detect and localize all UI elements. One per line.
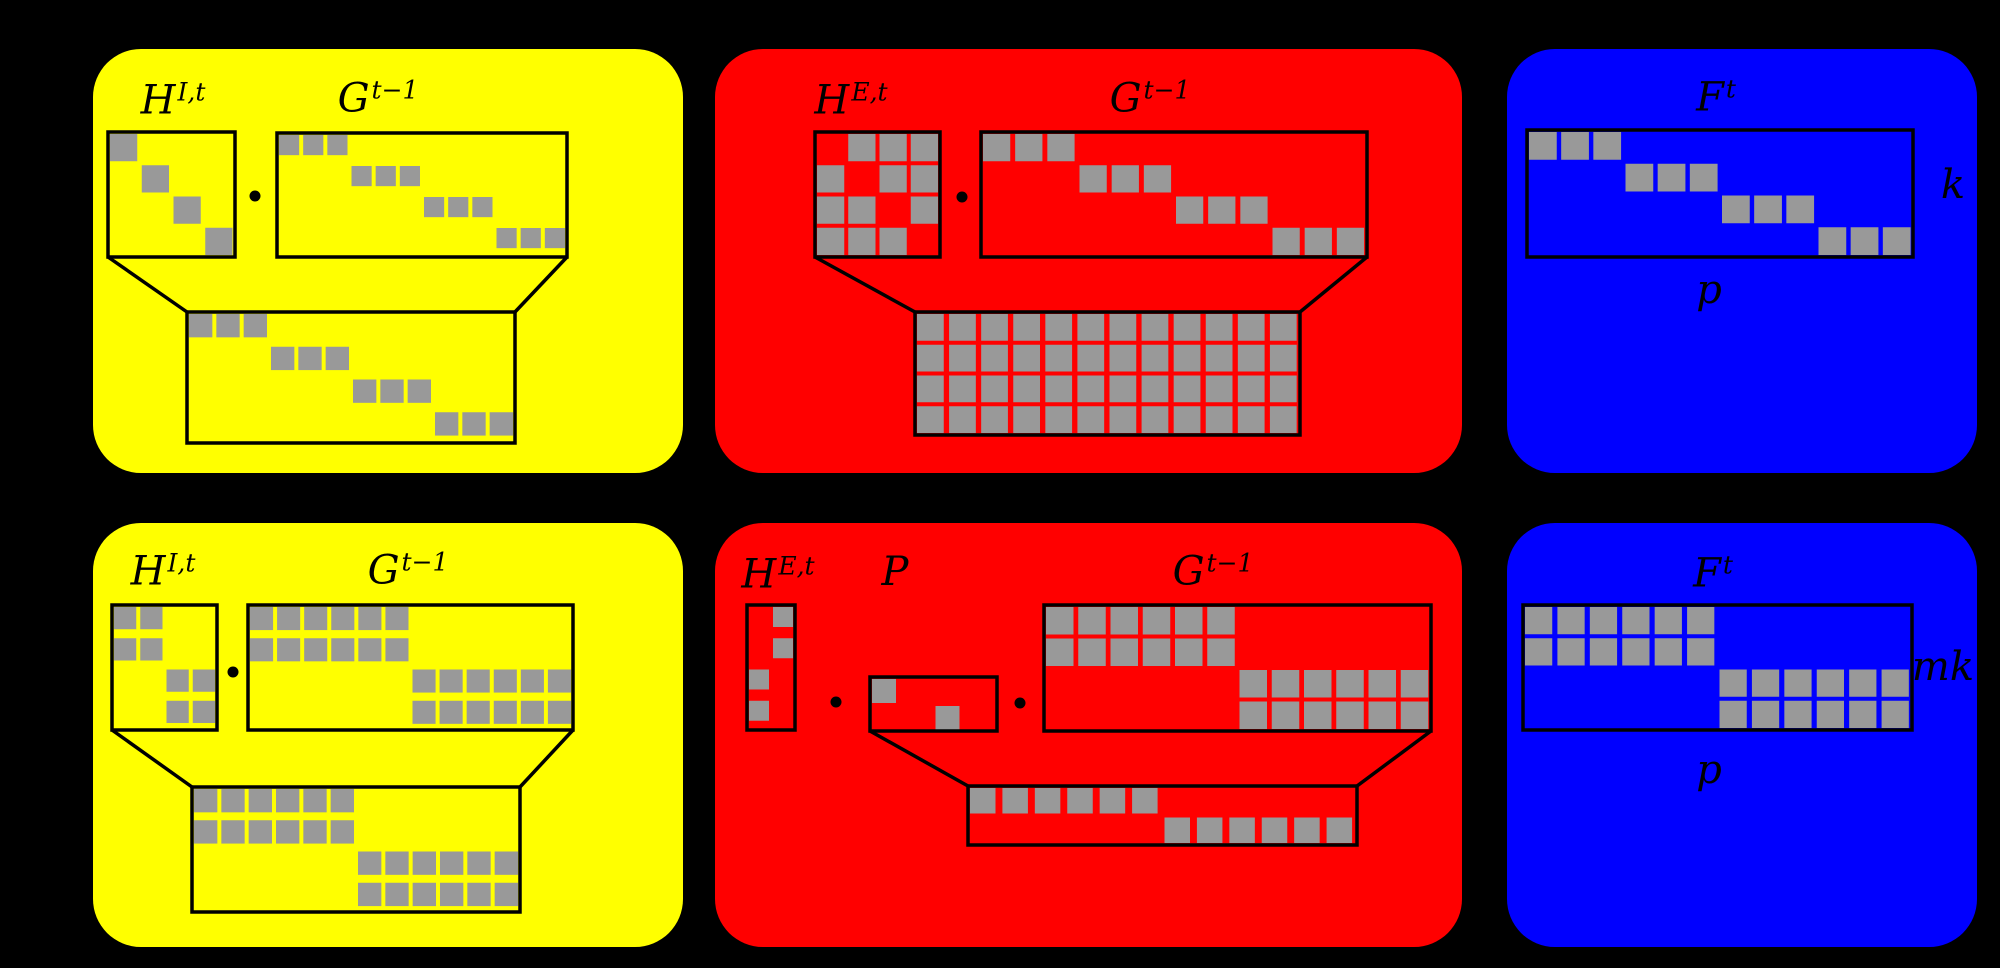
bottom-internal-yellow-result-matrix-cell bbox=[385, 883, 408, 906]
bottom-external-red-result-matrix-cell bbox=[1262, 818, 1288, 844]
bottom-internal-yellow-H-matrix-cell bbox=[167, 670, 189, 692]
bottom-internal-yellow-G-matrix-cell bbox=[467, 670, 490, 693]
bottom-forecast-blue-F-matrix-cell bbox=[1817, 701, 1844, 728]
top-external-red-result-matrix-cell bbox=[1174, 314, 1201, 341]
top-external-red-result-matrix-cell bbox=[1206, 345, 1233, 372]
top-external-red-result-matrix-cell bbox=[1077, 345, 1104, 372]
top-external-red-result-matrix-cell bbox=[1045, 406, 1072, 433]
panel-bottom-forecast-blue bbox=[1507, 523, 1977, 947]
top-internal-yellow-result-matrix-cell bbox=[380, 380, 403, 403]
top-forecast-blue-F-matrix-cell bbox=[1819, 227, 1847, 255]
label-superscript: t bbox=[1723, 551, 1733, 580]
figure-overlay bbox=[0, 0, 2000, 968]
bottom-forecast-blue-F-matrix-cell bbox=[1784, 670, 1811, 697]
bottom-internal-yellow-G-matrix-cell bbox=[548, 670, 571, 693]
top-external-red-result-matrix-cell bbox=[1045, 376, 1072, 403]
top-external-red-result-matrix-cell bbox=[1270, 314, 1297, 341]
bottom-forecast-blue-F-matrix-cell bbox=[1817, 670, 1844, 697]
bottom-external-red-G-matrix-cell bbox=[1207, 639, 1235, 667]
top-external-red-result-matrix-cell bbox=[1206, 406, 1233, 433]
top-internal-yellow-result-matrix-cell bbox=[189, 314, 212, 337]
top-external-red-result-matrix-cell bbox=[1142, 314, 1169, 341]
bottom-external-red-G-matrix-cell bbox=[1046, 607, 1074, 635]
top-forecast-blue-F-matrix-cell bbox=[1883, 227, 1911, 255]
bottom-internal-yellow-result-matrix-cell bbox=[194, 789, 217, 812]
bottom-external-red-result-matrix-cell bbox=[1002, 788, 1028, 814]
top-external-red-result-matrix-cell bbox=[1077, 376, 1104, 403]
top-internal-yellow-H-label: HI,t bbox=[141, 80, 206, 121]
bottom-external-red-H-matrix-cell bbox=[773, 638, 793, 658]
top-external-red-result-matrix-cell bbox=[1110, 376, 1137, 403]
top-internal-yellow-result-matrix-cell bbox=[298, 347, 321, 370]
bottom-forecast-blue-F-matrix-cell bbox=[1590, 607, 1617, 634]
top-external-red-result-matrix-cell bbox=[949, 314, 976, 341]
top-external-red-result-matrix-cell bbox=[1270, 376, 1297, 403]
top-forecast-blue-F-matrix-cell bbox=[1658, 164, 1686, 192]
top-external-red-result-matrix-cell bbox=[917, 345, 944, 372]
bottom-external-red-G-matrix-cell bbox=[1272, 702, 1300, 730]
top-forecast-blue-F-matrix-cell bbox=[1754, 196, 1782, 224]
bottom-forecast-blue-F-matrix-cell bbox=[1622, 638, 1649, 665]
top-internal-yellow-G-matrix-cell bbox=[545, 228, 565, 248]
top-external-red-result-matrix-cell bbox=[1077, 406, 1104, 433]
top-forecast-blue-F-matrix-cell bbox=[1626, 164, 1654, 192]
bottom-internal-yellow-result-matrix-cell bbox=[358, 883, 381, 906]
top-external-red-result-matrix-cell bbox=[1238, 314, 1265, 341]
bottom-forecast-blue-F-matrix-cell bbox=[1882, 701, 1909, 728]
panel-bottom-external-red bbox=[715, 523, 1462, 947]
top-external-red-H-matrix-cell bbox=[911, 134, 938, 161]
top-forecast-blue-F-matrix-cell bbox=[1561, 132, 1589, 160]
bottom-internal-yellow-H-matrix-cell bbox=[140, 638, 162, 660]
top-forecast-blue-F-matrix-cell bbox=[1786, 196, 1814, 224]
bottom-internal-yellow-G-matrix-cell bbox=[467, 701, 490, 724]
bottom-internal-yellow-G-matrix-cell bbox=[358, 638, 381, 661]
top-internal-yellow-G-matrix-cell bbox=[424, 197, 444, 217]
top-external-red-result-matrix-cell bbox=[917, 314, 944, 341]
bottom-forecast-blue-F-matrix-cell bbox=[1687, 638, 1714, 665]
top-external-red-H-label: HE,t bbox=[814, 80, 887, 121]
top-external-red-G-matrix-cell bbox=[1208, 197, 1235, 224]
label-superscript: E,t bbox=[851, 78, 887, 107]
panel-top-forecast-blue bbox=[1507, 49, 1977, 473]
top-external-red-result-matrix-cell bbox=[1238, 406, 1265, 433]
top-internal-yellow-G-label: Gt−1 bbox=[338, 78, 419, 119]
label-superscript: t−1 bbox=[372, 76, 419, 105]
top-external-red-multiply-dot bbox=[957, 192, 968, 203]
bottom-external-red-G-matrix-cell bbox=[1336, 702, 1364, 730]
label-base: F bbox=[1693, 551, 1721, 597]
top-external-red-G-matrix-cell bbox=[983, 134, 1010, 161]
bottom-internal-yellow-result-matrix-cell bbox=[413, 883, 436, 906]
bottom-external-red-result-matrix-cell bbox=[1132, 788, 1158, 814]
top-forecast-blue-F-label: Ft bbox=[1696, 77, 1736, 118]
bottom-internal-yellow-H-matrix-cell bbox=[193, 670, 215, 692]
bottom-forecast-blue-F-matrix-cell bbox=[1525, 607, 1552, 634]
bottom-external-red-G-matrix-cell bbox=[1143, 639, 1171, 667]
top-external-red-G-matrix-cell bbox=[1112, 165, 1139, 192]
bottom-external-red-G-matrix-cell bbox=[1304, 702, 1332, 730]
top-external-red-result-matrix-cell bbox=[981, 406, 1008, 433]
bottom-internal-yellow-G-matrix-cell bbox=[385, 638, 408, 661]
bottom-internal-yellow-G-matrix-cell bbox=[548, 701, 571, 724]
bottom-external-red-result-matrix-cell bbox=[1197, 818, 1223, 844]
top-external-red-result-matrix-cell bbox=[1045, 345, 1072, 372]
top-internal-yellow-result-matrix-cell bbox=[271, 347, 294, 370]
bottom-internal-yellow-G-matrix-cell bbox=[413, 670, 436, 693]
bottom-external-red-result-matrix-cell bbox=[1229, 818, 1255, 844]
bottom-forecast-blue-F-matrix-cell bbox=[1622, 607, 1649, 634]
top-internal-yellow-G-matrix-cell bbox=[279, 135, 299, 155]
label-superscript: t−1 bbox=[402, 548, 449, 577]
bottom-internal-yellow-result-matrix-cell bbox=[467, 883, 490, 906]
bottom-internal-yellow-G-matrix-cell bbox=[494, 701, 517, 724]
top-external-red-H-matrix-cell bbox=[880, 134, 907, 161]
bottom-internal-yellow-result-matrix-cell bbox=[276, 820, 299, 843]
bottom-internal-yellow-G-matrix-cell bbox=[250, 638, 273, 661]
top-internal-yellow-G-matrix-cell bbox=[521, 228, 541, 248]
top-internal-yellow-G-matrix-cell bbox=[400, 166, 420, 186]
top-external-red-result-matrix-cell bbox=[981, 314, 1008, 341]
matrix-factorization-figure: HI,tGt−1HE,tGt−1FtkpHI,tGt−1HE,tPGt−1Ftm… bbox=[0, 0, 2000, 968]
top-external-red-result-matrix-cell bbox=[949, 376, 976, 403]
top-external-red-result-matrix-cell bbox=[1013, 376, 1040, 403]
bottom-internal-yellow-result-matrix-cell bbox=[249, 820, 272, 843]
bottom-external-red-P-label: P bbox=[882, 552, 909, 592]
bottom-internal-yellow-G-matrix-cell bbox=[440, 670, 463, 693]
top-external-red-result-matrix-cell bbox=[917, 406, 944, 433]
top-external-red-H-matrix-cell bbox=[880, 228, 907, 255]
label-base: G bbox=[338, 76, 370, 122]
bottom-external-red-H-matrix-cell bbox=[749, 670, 769, 690]
bottom-forecast-blue-p-label: p bbox=[1696, 750, 1722, 790]
bottom-forecast-blue-F-matrix-cell bbox=[1655, 638, 1682, 665]
bottom-forecast-blue-F-matrix-cell bbox=[1752, 670, 1779, 697]
label-base: k bbox=[1941, 162, 1965, 208]
top-external-red-H-matrix-cell bbox=[817, 165, 844, 192]
bottom-internal-yellow-H-matrix-cell bbox=[193, 701, 215, 723]
bottom-internal-yellow-G-matrix-cell bbox=[385, 607, 408, 630]
top-internal-yellow-result-matrix-cell bbox=[244, 314, 267, 337]
bottom-internal-yellow-G-matrix-cell bbox=[413, 701, 436, 724]
bottom-internal-yellow-G-matrix-cell bbox=[250, 607, 273, 630]
label-superscript: E,t bbox=[778, 552, 814, 581]
top-forecast-blue-k-label: k bbox=[1941, 165, 1965, 205]
bottom-internal-yellow-H-matrix-cell bbox=[167, 701, 189, 723]
top-external-red-G-matrix-cell bbox=[1337, 228, 1364, 255]
top-forecast-blue-F-matrix-cell bbox=[1529, 132, 1557, 160]
top-external-red-result-matrix-cell bbox=[1174, 376, 1201, 403]
top-external-red-result-matrix-cell bbox=[1142, 376, 1169, 403]
top-external-red-G-matrix-cell bbox=[1015, 134, 1042, 161]
top-internal-yellow-result-matrix-cell bbox=[435, 412, 458, 435]
top-external-red-G-matrix-cell bbox=[1080, 165, 1107, 192]
bottom-external-red-H-label: HE,t bbox=[741, 554, 814, 595]
top-forecast-blue-F-matrix-cell bbox=[1851, 227, 1879, 255]
bottom-external-red-G-matrix-cell bbox=[1272, 670, 1300, 698]
bottom-internal-yellow-result-matrix-cell bbox=[413, 852, 436, 875]
top-internal-yellow-G-matrix-cell bbox=[327, 135, 347, 155]
bottom-internal-yellow-G-matrix-cell bbox=[277, 607, 300, 630]
bottom-external-red-multiply-dot bbox=[831, 697, 842, 708]
bottom-internal-yellow-multiply-dot bbox=[228, 667, 239, 678]
bottom-forecast-blue-F-matrix-cell bbox=[1687, 607, 1714, 634]
bottom-internal-yellow-result-matrix-cell bbox=[495, 852, 518, 875]
bottom-internal-yellow-result-matrix-cell bbox=[385, 852, 408, 875]
top-internal-yellow-result-matrix-cell bbox=[326, 347, 349, 370]
label-base: F bbox=[1696, 75, 1724, 121]
bottom-external-red-result-matrix-cell bbox=[970, 788, 996, 814]
top-internal-yellow-result-matrix-cell bbox=[353, 380, 376, 403]
bottom-external-red-G-matrix-cell bbox=[1240, 702, 1268, 730]
label-base: p bbox=[1696, 267, 1722, 313]
bottom-forecast-blue-F-matrix-cell bbox=[1720, 670, 1747, 697]
top-forecast-blue-F-matrix-cell bbox=[1593, 132, 1621, 160]
top-internal-yellow-G-matrix-cell bbox=[303, 135, 323, 155]
bottom-external-red-G-matrix-cell bbox=[1336, 670, 1364, 698]
bottom-external-red-G-matrix-cell bbox=[1175, 607, 1203, 635]
bottom-external-red-result-matrix-cell bbox=[1067, 788, 1093, 814]
bottom-external-red-G-matrix-cell bbox=[1401, 702, 1429, 730]
top-external-red-H-matrix-cell bbox=[911, 165, 938, 192]
bottom-external-red-G-matrix-cell bbox=[1078, 639, 1106, 667]
top-external-red-result-matrix-cell bbox=[949, 406, 976, 433]
top-external-red-result-matrix-cell bbox=[1238, 345, 1265, 372]
top-external-red-result-matrix-cell bbox=[1013, 314, 1040, 341]
bottom-forecast-blue-F-matrix-cell bbox=[1557, 607, 1584, 634]
top-external-red-H-matrix-cell bbox=[848, 228, 875, 255]
bottom-internal-yellow-result-matrix-cell bbox=[249, 789, 272, 812]
bottom-external-red-G-matrix-cell bbox=[1078, 607, 1106, 635]
bottom-internal-yellow-H-matrix-cell bbox=[114, 607, 136, 629]
top-external-red-G-matrix-cell bbox=[1273, 228, 1300, 255]
top-forecast-blue-F-matrix-cell bbox=[1690, 164, 1718, 192]
bottom-external-red-G-matrix-cell bbox=[1046, 639, 1074, 667]
bottom-internal-yellow-G-matrix-cell bbox=[358, 607, 381, 630]
bottom-forecast-blue-F-matrix-cell bbox=[1720, 701, 1747, 728]
bottom-forecast-blue-F-matrix-cell bbox=[1849, 701, 1876, 728]
top-external-red-H-matrix-cell bbox=[817, 228, 844, 255]
top-external-red-result-matrix-cell bbox=[1045, 314, 1072, 341]
bottom-internal-yellow-H-matrix-cell bbox=[114, 638, 136, 660]
top-external-red-result-matrix-cell bbox=[1013, 406, 1040, 433]
bottom-internal-yellow-result-matrix-cell bbox=[467, 852, 490, 875]
top-external-red-result-matrix-cell bbox=[1206, 314, 1233, 341]
bottom-external-red-G-matrix-cell bbox=[1304, 670, 1332, 698]
bottom-external-red-G-matrix-cell bbox=[1401, 670, 1429, 698]
top-internal-yellow-G-matrix-cell bbox=[376, 166, 396, 186]
top-external-red-result-matrix-cell bbox=[1206, 376, 1233, 403]
bottom-external-red-result-matrix-cell bbox=[1165, 818, 1191, 844]
top-internal-yellow-H-matrix-cell bbox=[142, 165, 169, 192]
top-external-red-G-matrix-cell bbox=[1176, 197, 1203, 224]
top-external-red-H-matrix-cell bbox=[817, 197, 844, 224]
bottom-external-red-G-matrix-cell bbox=[1143, 607, 1171, 635]
bottom-internal-yellow-result-matrix-cell bbox=[221, 789, 244, 812]
bottom-forecast-blue-F-matrix-cell bbox=[1784, 701, 1811, 728]
top-internal-yellow-multiply-dot bbox=[250, 191, 261, 202]
bottom-external-red-result-matrix-cell bbox=[1100, 788, 1126, 814]
bottom-internal-yellow-G-label: Gt−1 bbox=[368, 550, 449, 591]
top-external-red-result-matrix-cell bbox=[1013, 345, 1040, 372]
top-external-red-G-matrix-cell bbox=[1305, 228, 1332, 255]
top-external-red-result-matrix-cell bbox=[981, 376, 1008, 403]
bottom-internal-yellow-H-label: HI,t bbox=[131, 551, 196, 592]
top-external-red-G-matrix-cell bbox=[1047, 134, 1074, 161]
label-superscript: I,t bbox=[168, 549, 196, 578]
bottom-external-red-result-matrix-cell bbox=[1327, 818, 1353, 844]
top-external-red-result-matrix-cell bbox=[981, 345, 1008, 372]
bottom-internal-yellow-result-matrix-cell bbox=[303, 789, 326, 812]
top-forecast-blue-F-matrix-cell bbox=[1722, 196, 1750, 224]
top-external-red-G-matrix-cell bbox=[1144, 165, 1171, 192]
top-internal-yellow-G-matrix-cell bbox=[352, 166, 372, 186]
bottom-internal-yellow-result-matrix-cell bbox=[440, 883, 463, 906]
bottom-internal-yellow-G-matrix-cell bbox=[304, 607, 327, 630]
label-base: H bbox=[131, 549, 166, 595]
bottom-external-red-G-matrix-cell bbox=[1240, 670, 1268, 698]
bottom-internal-yellow-result-matrix-cell bbox=[331, 820, 354, 843]
bottom-external-red-multiply-dot bbox=[1015, 698, 1026, 709]
top-internal-yellow-G-matrix-cell bbox=[497, 228, 517, 248]
label-superscript: t bbox=[1726, 75, 1736, 104]
top-external-red-result-matrix-cell bbox=[1174, 345, 1201, 372]
bottom-internal-yellow-result-matrix-cell bbox=[358, 852, 381, 875]
label-base: P bbox=[882, 549, 909, 595]
bottom-internal-yellow-result-matrix-cell bbox=[440, 852, 463, 875]
top-internal-yellow-result-matrix-cell bbox=[408, 380, 431, 403]
bottom-external-red-G-matrix-cell bbox=[1369, 702, 1397, 730]
bottom-external-red-result-matrix-cell bbox=[1035, 788, 1061, 814]
bottom-external-red-P-matrix-cell bbox=[936, 706, 960, 730]
bottom-internal-yellow-G-matrix-cell bbox=[440, 701, 463, 724]
bottom-external-red-G-matrix-cell bbox=[1111, 607, 1139, 635]
bottom-forecast-blue-F-label: Ft bbox=[1693, 553, 1733, 594]
top-external-red-G-label: Gt−1 bbox=[1110, 78, 1191, 119]
bottom-forecast-blue-F-matrix-cell bbox=[1590, 638, 1617, 665]
bottom-internal-yellow-G-matrix-cell bbox=[521, 701, 544, 724]
top-internal-yellow-G-matrix-cell bbox=[472, 197, 492, 217]
bottom-external-red-G-label: Gt−1 bbox=[1173, 551, 1254, 592]
top-external-red-G-matrix-cell bbox=[1240, 197, 1267, 224]
bottom-forecast-blue-mk-label: mk bbox=[1912, 647, 1974, 687]
bottom-internal-yellow-result-matrix-cell bbox=[495, 883, 518, 906]
top-forecast-blue-p-label: p bbox=[1696, 270, 1722, 310]
top-external-red-result-matrix-cell bbox=[1270, 345, 1297, 372]
bottom-internal-yellow-G-matrix-cell bbox=[304, 638, 327, 661]
label-superscript: I,t bbox=[178, 78, 206, 107]
label-base: H bbox=[741, 552, 776, 598]
bottom-internal-yellow-result-matrix-cell bbox=[194, 820, 217, 843]
top-external-red-result-matrix-cell bbox=[1110, 345, 1137, 372]
bottom-internal-yellow-G-matrix-cell bbox=[331, 607, 354, 630]
top-external-red-result-matrix-cell bbox=[917, 376, 944, 403]
bottom-external-red-G-matrix-cell bbox=[1369, 670, 1397, 698]
top-internal-yellow-result-matrix-cell bbox=[490, 412, 513, 435]
bottom-internal-yellow-G-matrix-cell bbox=[277, 638, 300, 661]
top-external-red-result-matrix-cell bbox=[1238, 376, 1265, 403]
bottom-internal-yellow-result-matrix-cell bbox=[331, 789, 354, 812]
bottom-external-red-G-matrix-cell bbox=[1111, 639, 1139, 667]
top-internal-yellow-H-matrix-cell bbox=[174, 197, 201, 224]
label-base: p bbox=[1696, 747, 1722, 793]
label-base: H bbox=[814, 78, 849, 124]
bottom-internal-yellow-result-matrix-cell bbox=[221, 820, 244, 843]
top-external-red-result-matrix-cell bbox=[1110, 406, 1137, 433]
top-external-red-H-matrix-cell bbox=[880, 165, 907, 192]
top-external-red-result-matrix-cell bbox=[1270, 406, 1297, 433]
label-base: G bbox=[1110, 76, 1142, 122]
bottom-external-red-H-matrix-cell bbox=[773, 607, 793, 627]
bottom-internal-yellow-G-matrix-cell bbox=[494, 670, 517, 693]
bottom-forecast-blue-F-matrix-cell bbox=[1849, 670, 1876, 697]
bottom-internal-yellow-G-matrix-cell bbox=[331, 638, 354, 661]
top-internal-yellow-H-matrix-cell bbox=[110, 134, 137, 161]
top-external-red-result-matrix-cell bbox=[1142, 406, 1169, 433]
bottom-forecast-blue-F-matrix-cell bbox=[1525, 638, 1552, 665]
bottom-external-red-H-matrix-cell bbox=[749, 701, 769, 721]
bottom-external-red-result-matrix-cell bbox=[1294, 818, 1320, 844]
label-base: G bbox=[1173, 549, 1205, 595]
label-base: H bbox=[141, 78, 176, 124]
label-base: G bbox=[368, 548, 400, 594]
label-superscript: t−1 bbox=[1207, 549, 1254, 578]
bottom-external-red-G-matrix-cell bbox=[1175, 639, 1203, 667]
top-internal-yellow-result-matrix-cell bbox=[462, 412, 485, 435]
top-internal-yellow-H-matrix-cell bbox=[205, 228, 232, 255]
bottom-internal-yellow-H-matrix-cell bbox=[140, 607, 162, 629]
top-external-red-H-matrix-cell bbox=[848, 197, 875, 224]
bottom-external-red-G-matrix-cell bbox=[1207, 607, 1235, 635]
top-internal-yellow-result-matrix-cell bbox=[216, 314, 239, 337]
label-base: mk bbox=[1912, 644, 1974, 690]
top-external-red-result-matrix-cell bbox=[1110, 314, 1137, 341]
bottom-forecast-blue-F-matrix-cell bbox=[1882, 670, 1909, 697]
top-external-red-H-matrix-cell bbox=[911, 197, 938, 224]
bottom-forecast-blue-F-matrix-cell bbox=[1752, 701, 1779, 728]
top-external-red-result-matrix-cell bbox=[1142, 345, 1169, 372]
bottom-forecast-blue-F-matrix-cell bbox=[1557, 638, 1584, 665]
label-superscript: t−1 bbox=[1144, 76, 1191, 105]
top-external-red-result-matrix-cell bbox=[949, 345, 976, 372]
bottom-internal-yellow-result-matrix-cell bbox=[276, 789, 299, 812]
bottom-internal-yellow-result-matrix-cell bbox=[303, 820, 326, 843]
top-external-red-result-matrix-cell bbox=[1077, 314, 1104, 341]
top-internal-yellow-G-matrix-cell bbox=[448, 197, 468, 217]
top-external-red-result-matrix-cell bbox=[1174, 406, 1201, 433]
bottom-external-red-P-matrix-cell bbox=[872, 679, 896, 703]
bottom-internal-yellow-G-matrix-cell bbox=[521, 670, 544, 693]
top-external-red-H-matrix-cell bbox=[848, 134, 875, 161]
bottom-forecast-blue-F-matrix-cell bbox=[1655, 607, 1682, 634]
